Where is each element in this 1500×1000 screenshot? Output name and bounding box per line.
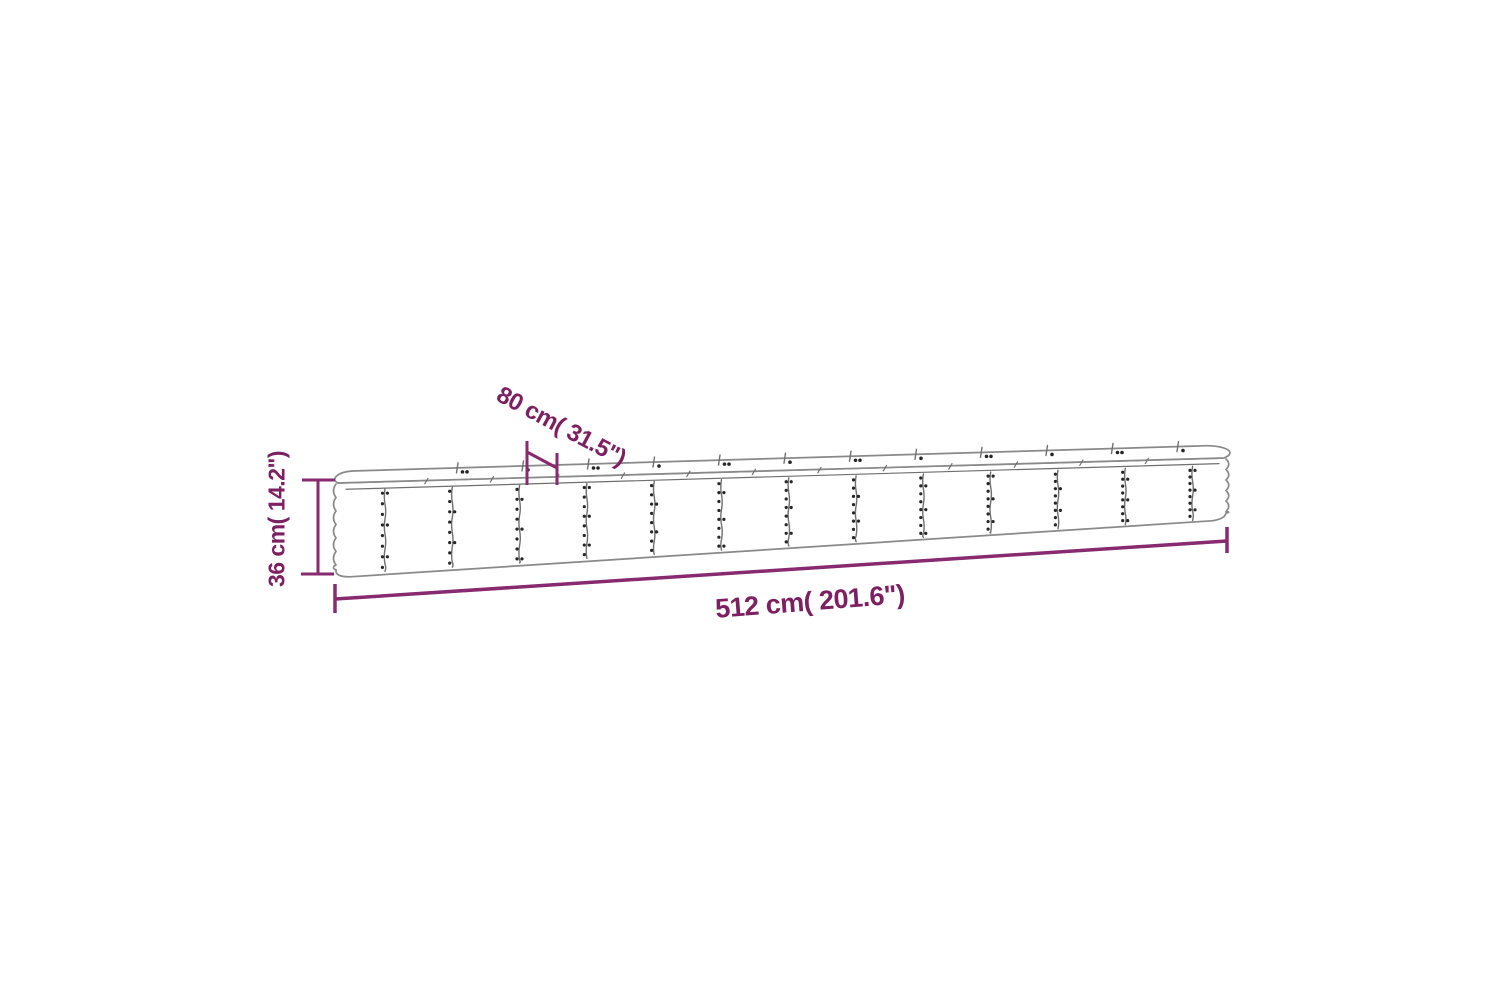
diagram-canvas: 80 cm( 31.5") 36 cm( 14.2") 512 cm( 201.… — [0, 0, 1500, 1000]
planter-line-drawing — [0, 0, 1500, 1000]
height-dimension-label: 36 cm( 14.2") — [264, 451, 291, 587]
